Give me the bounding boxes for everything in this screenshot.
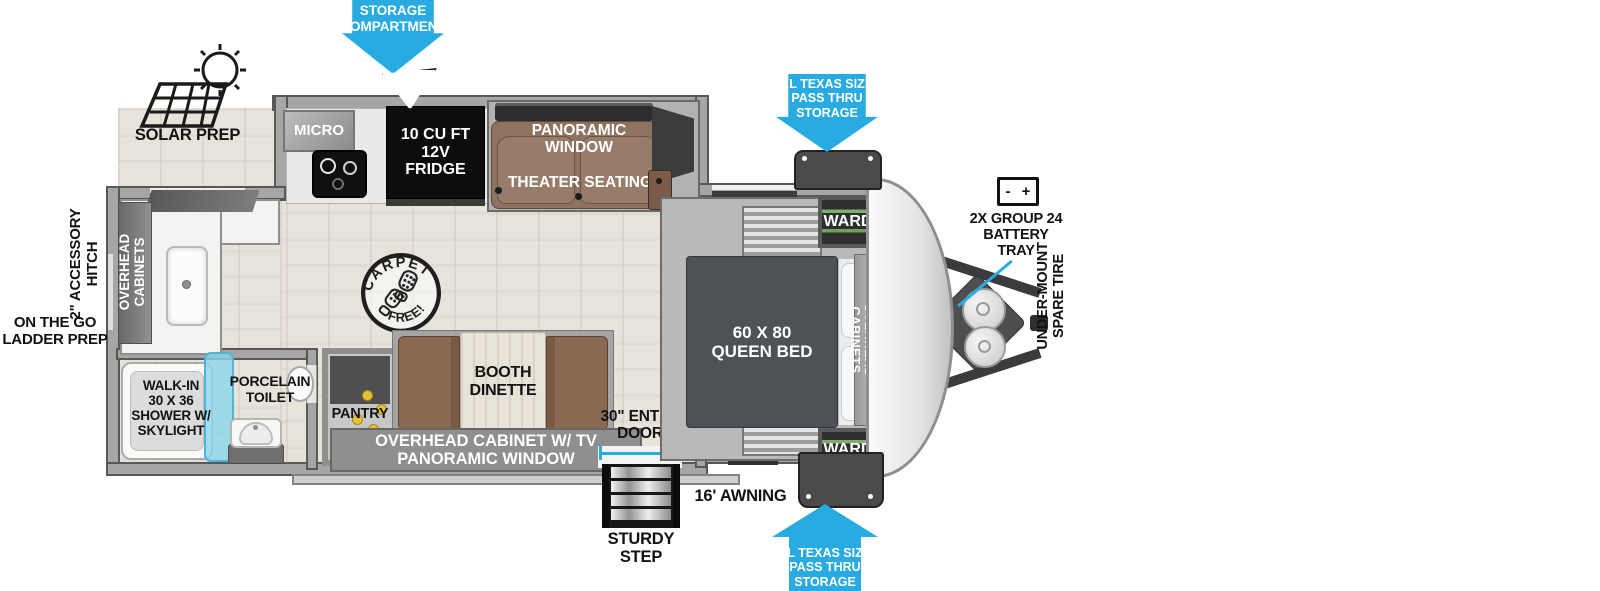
fridge-base <box>386 199 485 206</box>
micro-label: MICRO <box>294 123 344 140</box>
pass-thru-box-bottom-rivet-right <box>868 494 873 499</box>
storage-compartment-label: STORAGE COMPARTMENT <box>340 3 446 74</box>
fridge-label: 10 CU FT 12V FRIDGE <box>401 126 470 180</box>
spare-tire-label: UNDER-MOUNT SPARE TIRE <box>1035 226 1071 366</box>
rear-overhead-angled-cabinet <box>144 190 259 212</box>
sofa-end-cabinet-knob <box>656 178 662 184</box>
booth-dinette-label: BOOTH DINETTE <box>469 364 536 400</box>
microwave: MICRO <box>283 110 355 152</box>
awning-label: 16' AWNING <box>688 487 793 505</box>
front-cap <box>866 178 954 478</box>
tv-cabinet-label: OVERHEAD CABINET W/ TV PANORAMIC WINDOW <box>375 432 597 469</box>
solar-panel-icon <box>138 38 263 130</box>
cooktop <box>312 150 367 198</box>
cooktop-burner-right <box>343 161 357 175</box>
storage-compartment-arrow: STORAGE COMPARTMENT <box>342 0 444 74</box>
pass-thru-bottom-label: XL TEXAS SIZE PASS THRU STORAGE <box>779 546 871 589</box>
vanity-faucet <box>253 425 258 430</box>
pass-thru-top-arrow: XL TEXAS SIZE PASS THRU STORAGE <box>776 74 878 152</box>
pass-thru-box-bottom <box>798 452 884 508</box>
panoramic-window-label: PANORAMIC WINDOW <box>498 122 660 157</box>
pantry-label: PANTRY <box>324 406 396 422</box>
step-tread-1 <box>611 467 671 478</box>
cooktop-burner-left <box>320 158 336 174</box>
porcelain-toilet-label: PORCELAIN TOILET <box>222 374 318 405</box>
propane-tank-top-valve <box>976 302 990 316</box>
pantry-item-1 <box>362 390 373 401</box>
theater-seating-label: THEATER SEATING <box>505 174 655 191</box>
entry-steps <box>602 464 680 528</box>
ladder-prep-label: ON THE GO LADDER PREP <box>0 315 110 349</box>
step-tread-3 <box>611 495 671 506</box>
dinette-table: BOOTH DINETTE <box>460 332 546 432</box>
floorplan-diagram: OVERHEAD CABINETS WALK-IN 30 X 36 SHOWER… <box>0 0 1600 591</box>
rear-overhead-cabinets-label: OVERHEAD CABINETS <box>117 197 153 347</box>
sofa-window-frame <box>495 103 653 121</box>
queen-bed-label: 60 X 80 QUEEN BED <box>711 323 812 361</box>
battery-minus-symbol: - <box>1006 183 1011 200</box>
bed-step-top <box>742 206 822 258</box>
solar-prep-label: SOLAR PREP <box>120 126 255 144</box>
pass-thru-box-bottom-rivet-left <box>806 494 811 499</box>
battery-icon: - + <box>997 177 1039 206</box>
pass-thru-bottom-arrow: XL TEXAS SIZE PASS THRU STORAGE <box>772 504 878 591</box>
pass-thru-box-top-rivet-right <box>868 156 873 161</box>
sturdy-step-label: STURDY STEP <box>592 530 690 567</box>
step-tread-4 <box>611 509 671 520</box>
bedroom-top-window <box>712 185 797 190</box>
battery-plus-symbol: + <box>1022 183 1031 200</box>
sofa-cupholder-1 <box>494 186 503 195</box>
dinette-bench-left <box>398 336 460 430</box>
propane-tank-bottom-valve <box>978 340 991 353</box>
rear-sink-faucet <box>182 280 191 289</box>
cooktop-burner-small <box>332 178 344 190</box>
queen-bed: 60 X 80 QUEEN BED <box>686 256 838 428</box>
refrigerator: 10 CU FT 12V FRIDGE <box>386 106 485 199</box>
accessory-hitch-label: 2" ACCESSORY HITCH <box>68 194 104 334</box>
pass-thru-box-top-rivet-left <box>802 156 807 161</box>
step-tread-2 <box>611 481 671 492</box>
entry-door-measure-tick-left <box>599 446 602 460</box>
sofa-cupholder-2 <box>574 192 583 201</box>
shower-label: WALK-IN 30 X 36 SHOWER W/ SKYLIGHT <box>112 378 230 438</box>
pass-thru-top-label: XL TEXAS SIZE PASS THRU STORAGE <box>781 77 873 152</box>
pantry-interior <box>330 356 390 404</box>
